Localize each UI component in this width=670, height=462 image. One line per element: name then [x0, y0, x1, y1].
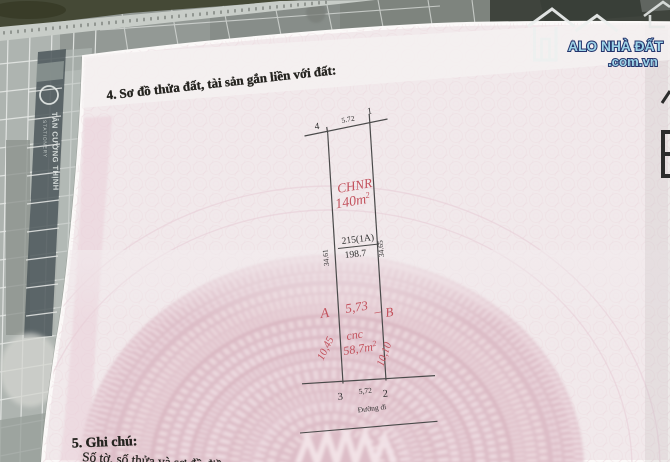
- svg-text:.com.vn: .com.vn: [608, 54, 658, 69]
- svg-text:5. Ghi chú:: 5. Ghi chú:: [72, 433, 138, 450]
- svg-text:5,72: 5,72: [358, 386, 372, 396]
- svg-text:34.65: 34.65: [376, 240, 386, 258]
- svg-text:198.7: 198.7: [344, 248, 367, 261]
- svg-text:STATIONERY: STATIONERY: [41, 120, 48, 158]
- svg-text:TÂN CƯỜNG THỊNH: TÂN CƯỜNG THỊNH: [50, 112, 60, 191]
- svg-text:ALO NHÀ ĐẤT: ALO NHÀ ĐẤT: [568, 38, 664, 54]
- svg-text:34.61: 34.61: [321, 249, 331, 267]
